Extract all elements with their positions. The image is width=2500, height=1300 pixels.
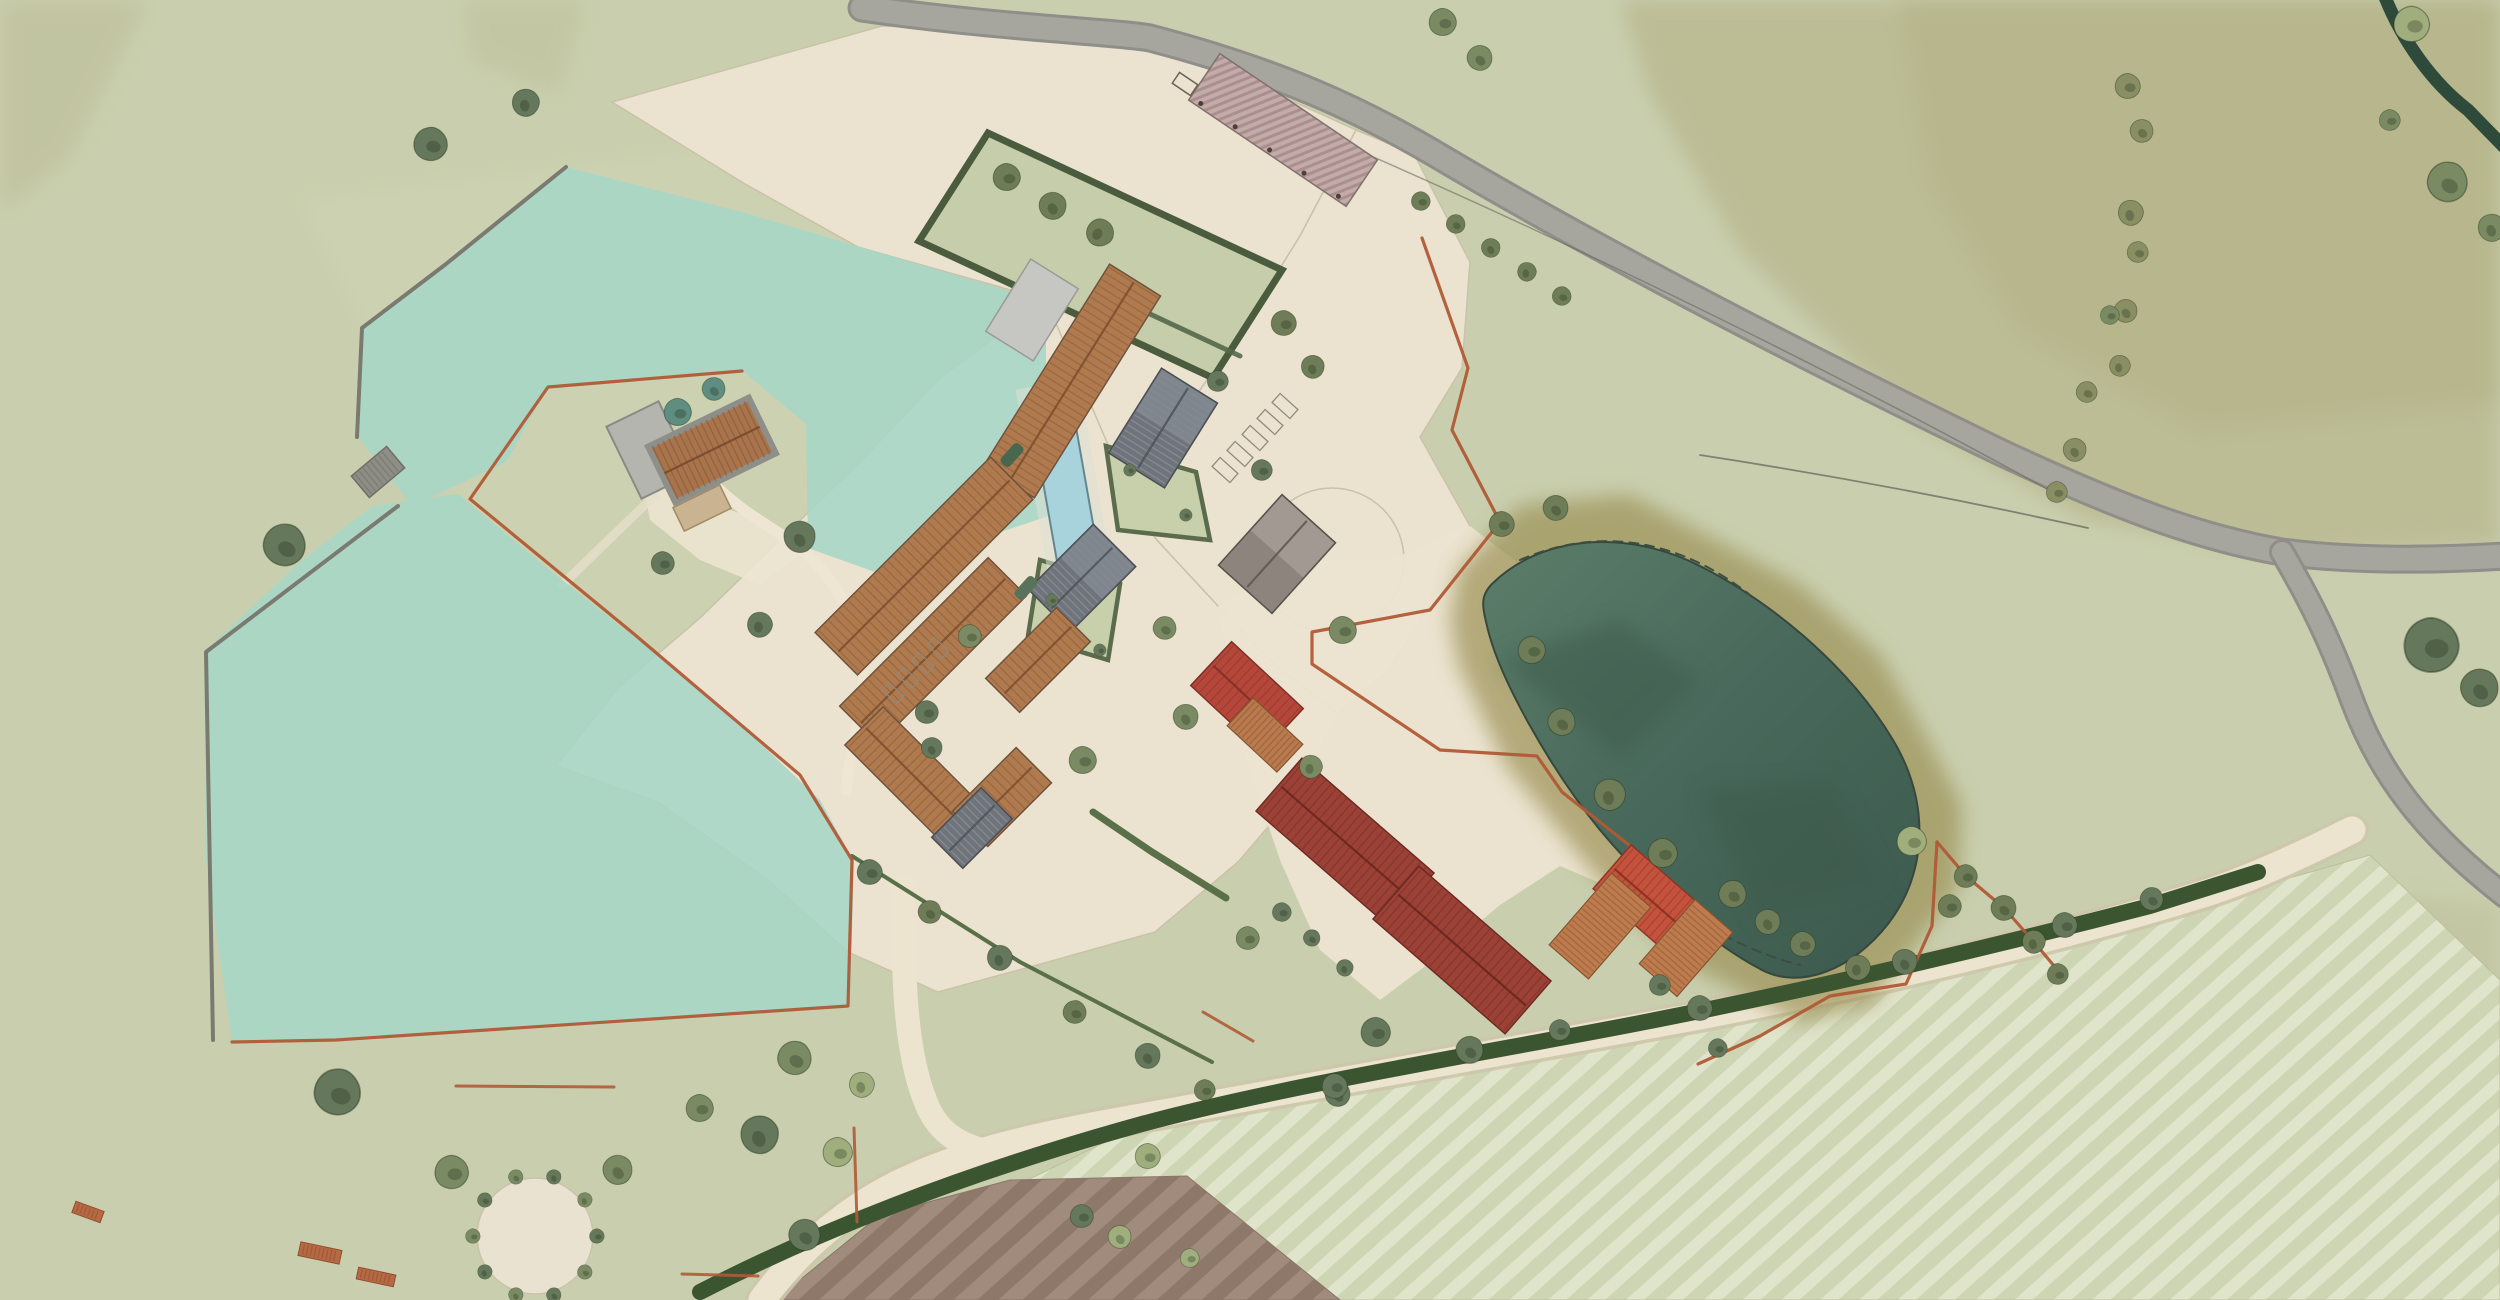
fence-red-sw-1 <box>456 1086 614 1087</box>
tree <box>1549 1020 1570 1041</box>
tree <box>958 625 981 648</box>
tree <box>1649 975 1670 996</box>
fence-red-sw-3 <box>682 1274 758 1276</box>
tree <box>1207 371 1228 392</box>
tree <box>2404 618 2458 672</box>
site-plan-svg <box>0 0 2500 1300</box>
tree <box>435 1155 468 1188</box>
tree <box>1180 509 1193 522</box>
tree <box>1429 8 1456 35</box>
tree <box>651 552 674 575</box>
tree <box>1236 927 1259 950</box>
tree <box>1518 636 1545 663</box>
tree <box>1708 1039 1727 1058</box>
tree <box>1135 1143 1160 1168</box>
tree <box>1272 903 1291 922</box>
tree <box>823 1137 852 1166</box>
tree <box>1180 1249 1199 1268</box>
tree <box>1322 1073 1347 1098</box>
tree <box>1329 616 1356 643</box>
tree <box>1489 511 1514 536</box>
tree <box>2110 355 2131 376</box>
tree <box>748 612 773 637</box>
tree <box>1069 746 1096 773</box>
tree <box>2100 306 2119 325</box>
tree <box>1411 192 1430 211</box>
tree <box>993 163 1020 190</box>
tree <box>2379 110 2400 131</box>
tree <box>2052 912 2077 937</box>
tree <box>1046 594 1059 607</box>
tree <box>1648 838 1677 867</box>
tree <box>1938 895 1961 918</box>
tree <box>915 701 938 724</box>
tree <box>1094 644 1107 657</box>
tree <box>1070 1205 1093 1228</box>
tree <box>1124 464 1137 477</box>
tree <box>1251 460 1272 481</box>
tree <box>1300 755 1323 778</box>
tree <box>1846 955 1871 980</box>
tree <box>1790 931 1815 956</box>
tree <box>1271 310 1296 335</box>
tree <box>857 859 882 884</box>
tree <box>2047 964 2068 985</box>
tree <box>1518 262 1537 281</box>
tree <box>686 1094 713 1121</box>
tree <box>466 1229 481 1244</box>
tree <box>1687 995 1712 1020</box>
tree <box>1897 826 1926 855</box>
tree <box>1194 1080 1215 1101</box>
tree <box>2046 482 2067 503</box>
tree <box>2115 73 2140 98</box>
tree <box>664 398 691 425</box>
site-plan-layers <box>0 0 2500 1300</box>
grass-circle-clearing <box>477 1178 593 1294</box>
tree <box>1361 1017 1390 1046</box>
site-plan-stage <box>0 0 2500 1300</box>
tree <box>590 1229 605 1244</box>
tree <box>1954 865 1977 888</box>
tree <box>2394 6 2430 41</box>
